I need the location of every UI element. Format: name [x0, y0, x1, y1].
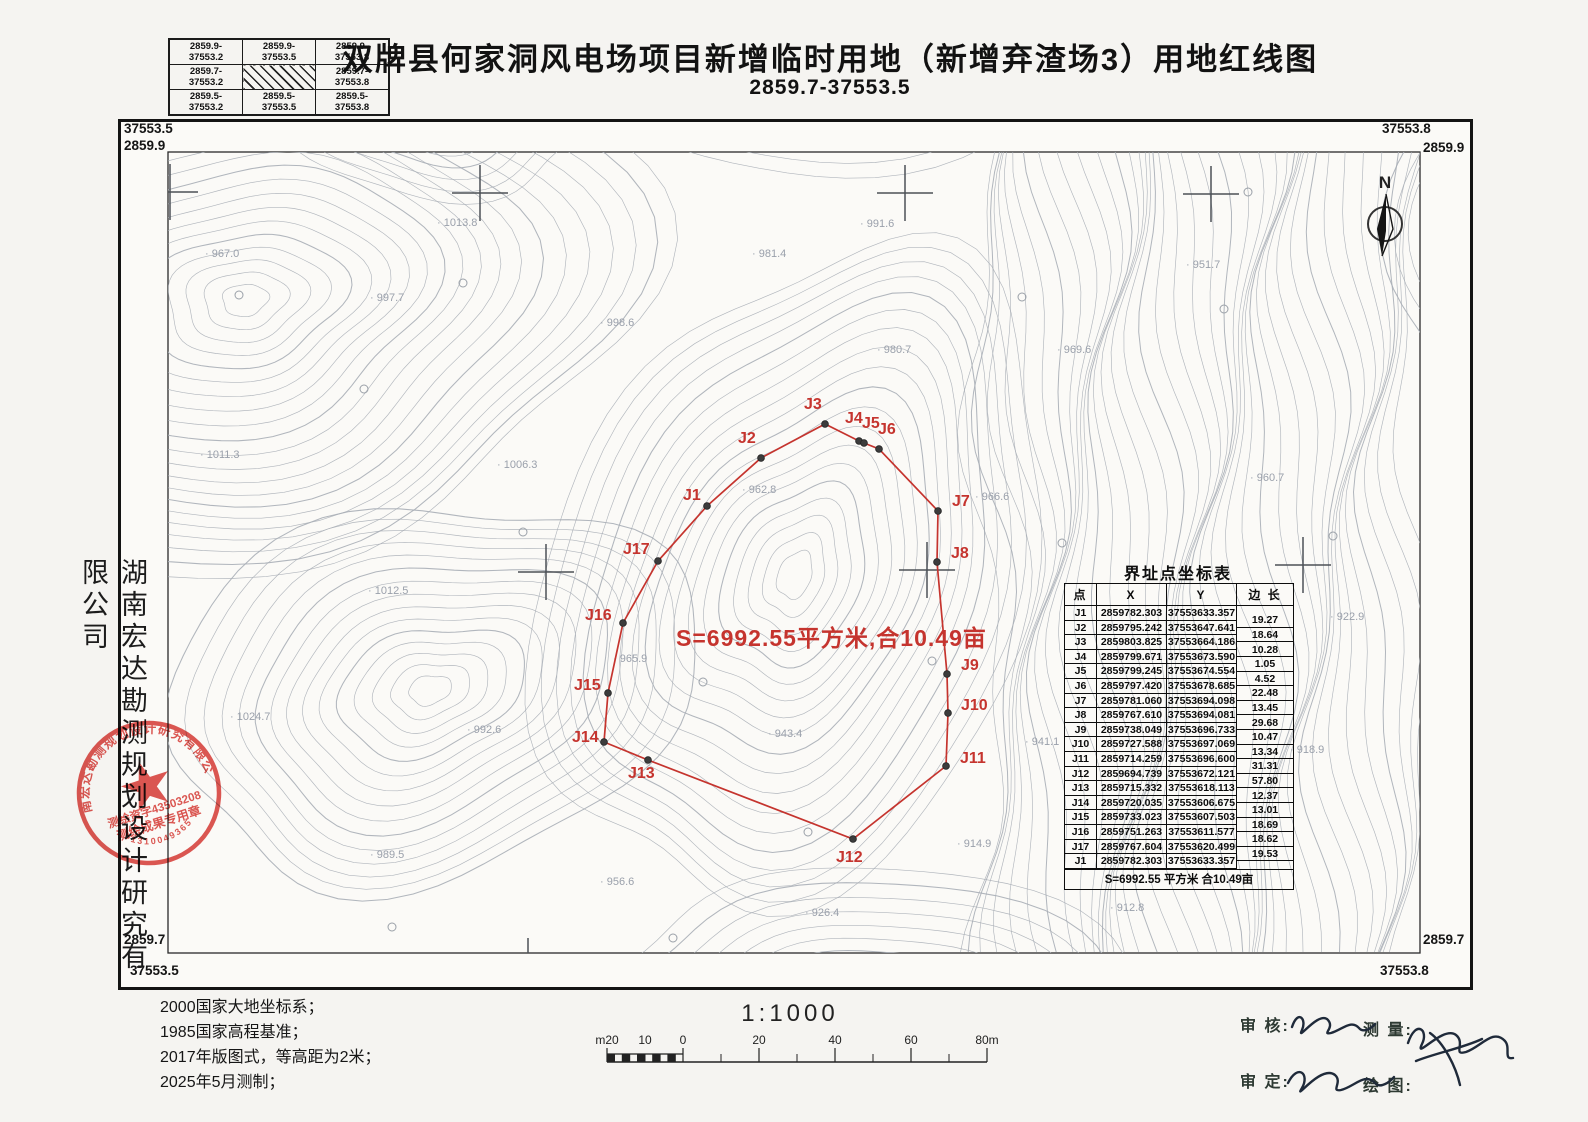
spot-elevation: · 966.6	[975, 491, 1009, 503]
coord-table-cell: 2859799.245	[1097, 664, 1167, 679]
coord-table-cell: 37553647.641	[1167, 621, 1237, 636]
coord-table-cell: 37553620.499	[1167, 840, 1237, 855]
segment-length-cell: 12.37	[1237, 789, 1293, 804]
coord-table-cell: 37553694.098	[1167, 694, 1237, 709]
scale-tick-label: 10	[638, 1033, 652, 1047]
coord-table-cell: 37553696.733	[1167, 723, 1237, 738]
coord-table-header: Y	[1167, 584, 1237, 606]
boundary-point-J8	[934, 559, 941, 566]
boundary-point-J12	[850, 836, 857, 843]
signature-approver	[1288, 1072, 1394, 1091]
coord-table-cell: J6	[1065, 679, 1097, 694]
signature-reviewer	[1292, 1017, 1375, 1033]
scanned-map-page: 2859.9-37553.22859.9-37553.52859.9-37553…	[0, 0, 1588, 1122]
segment-length-cell: 10.47	[1237, 730, 1293, 745]
scale-bar: m2010020406080m	[590, 1030, 1010, 1078]
grid-cross	[452, 165, 508, 221]
boundary-coordinates-table: 点 号XY边 长J12859782.30337553633.357J228597…	[1064, 583, 1294, 890]
segment-length-cell: 13.01	[1237, 803, 1293, 818]
boundary-point-label-J6: J6	[878, 421, 896, 438]
coord-table-cell: 2859767.604	[1097, 840, 1167, 855]
coord-table-cell: J13	[1065, 781, 1097, 796]
boundary-point-label-J2: J2	[738, 430, 756, 447]
coord-table-cell: 2859720.035	[1097, 796, 1167, 811]
spot-elevation: · 918.9	[1290, 744, 1324, 756]
spot-circle	[1018, 293, 1026, 301]
spot-circle	[388, 923, 396, 931]
segment-length-cell: 18.69	[1237, 818, 1293, 833]
segment-length-cell: 13.34	[1237, 745, 1293, 760]
red-seal-stamp: 湖南宏达勘测规划设计研究有限公司测绘资字43503208测绘成果专用章13100…	[64, 708, 234, 878]
boundary-point-J7	[935, 508, 942, 515]
segment-length-cell: 4.52	[1237, 672, 1293, 687]
spot-circle	[804, 828, 812, 836]
boundary-point-label-J10: J10	[961, 697, 988, 714]
spot-elevation: · 981.4	[752, 248, 786, 260]
coord-table-cell: 37553694.081	[1167, 708, 1237, 723]
coord-table-cell: 2859694.739	[1097, 767, 1167, 782]
scale-tick-label: 40	[828, 1033, 842, 1047]
scale-tick-label: 60	[904, 1033, 918, 1047]
boundary-point-J1	[704, 503, 711, 510]
boundary-point-J17	[655, 558, 662, 565]
boundary-point-label-J14: J14	[572, 729, 599, 746]
coord-table-cell: 37553607.503	[1167, 810, 1237, 825]
coord-table-cell: J1	[1065, 606, 1097, 621]
coord-table-cell: 37553633.357	[1167, 854, 1237, 869]
spot-elevation: · 951.7	[1186, 259, 1220, 271]
scale-tick-label: 0	[680, 1033, 687, 1047]
coord-table-cell: 37553697.069	[1167, 737, 1237, 752]
scale-tick-label: 20	[752, 1033, 766, 1047]
note-line: 2017年版图式，等高距为2米；	[160, 1045, 381, 1070]
coord-table-cell: J11	[1065, 752, 1097, 767]
coord-table-header: 点 号	[1065, 584, 1097, 606]
coord-table-cell: 37553696.600	[1167, 752, 1237, 767]
signature-surveyor	[1408, 1029, 1513, 1085]
coord-table-cell: J8	[1065, 708, 1097, 723]
boundary-point-J15	[605, 690, 612, 697]
coord-table-cell: 2859782.303	[1097, 854, 1167, 869]
boundary-point-label-J11: J11	[960, 750, 986, 767]
coord-table-cell: 2859781.060	[1097, 694, 1167, 709]
spot-elevation: · 992.6	[467, 724, 501, 736]
spot-elevation: · 997.7	[370, 292, 404, 304]
boundary-point-label-J1: J1	[683, 487, 701, 504]
segment-length-cell: 18.62	[1237, 832, 1293, 847]
coord-table-cell: J10	[1065, 737, 1097, 752]
coord-table-cell: 2859799.671	[1097, 650, 1167, 665]
spot-elevation: · 967.0	[205, 248, 239, 260]
spot-elevation: · 956.6	[600, 876, 634, 888]
coord-table-cell: 2859795.242	[1097, 621, 1167, 636]
coord-table-cell: 2859803.825	[1097, 635, 1167, 650]
coord-table-cell: 37553678.685	[1167, 679, 1237, 694]
coord-table-cell: 2859767.610	[1097, 708, 1167, 723]
spot-elevation: · 1012.5	[368, 585, 408, 597]
north-arrow-icon: N	[1368, 173, 1402, 256]
spot-circle	[1329, 532, 1337, 540]
spot-elevation: · 1013.8	[437, 217, 477, 229]
segment-length-cell: 57.80	[1237, 774, 1293, 789]
coord-table-header: 边 长	[1237, 584, 1293, 606]
coord-table-cell: J9	[1065, 723, 1097, 738]
spot-circle	[1058, 539, 1066, 547]
coord-table-title: 界址点坐标表	[1064, 560, 1292, 584]
spot-elevation: · 941.1	[1025, 736, 1059, 748]
coord-table-cell: J4	[1065, 650, 1097, 665]
boundary-point-J6	[876, 446, 883, 453]
boundary-point-label-J9: J9	[961, 657, 979, 674]
coord-table-cell: 2859782.303	[1097, 606, 1167, 621]
note-line: 1985国家高程基准；	[160, 1020, 381, 1045]
segment-length-cell: 1.05	[1237, 657, 1293, 672]
boundary-point-label-J4: J4	[845, 410, 863, 427]
coord-table-cell: 37553618.113	[1167, 781, 1237, 796]
north-label: N	[1379, 173, 1391, 192]
grid-cross	[518, 544, 574, 600]
boundary-point-label-J13: J13	[628, 765, 655, 782]
topographic-map: · 967.0· 1013.8· 997.7· 998.6· 981.4· 99…	[0, 0, 1588, 1122]
grid-cross	[1183, 166, 1239, 222]
spot-elevation: · 1024.7	[230, 711, 270, 723]
coord-table-cell: 37553672.121	[1167, 767, 1237, 782]
coord-table-cell: 2859727.588	[1097, 737, 1167, 752]
spot-elevation: · 989.5	[370, 849, 404, 861]
coord-table-cell: 2859714.259	[1097, 752, 1167, 767]
coord-table-cell: 37553674.554	[1167, 664, 1237, 679]
note-line: 2025年5月测制；	[160, 1070, 381, 1095]
boundary-point-J14	[601, 739, 608, 746]
coord-table-cell: J16	[1065, 825, 1097, 840]
boundary-point-J16	[620, 620, 627, 627]
coord-table-cell: J14	[1065, 796, 1097, 811]
boundary-point-label-J16: J16	[585, 607, 612, 624]
spot-elevation: · 1006.3	[497, 459, 537, 471]
grid-cross	[899, 542, 955, 598]
coord-table-cell: 2859715.332	[1097, 781, 1167, 796]
contour-lines	[0, 0, 1588, 1122]
handwritten-signatures	[1270, 995, 1570, 1115]
coord-table-cell: 2859797.420	[1097, 679, 1167, 694]
coord-table-cell: J15	[1065, 810, 1097, 825]
spot-circle	[360, 385, 368, 393]
spot-elevation: · 922.9	[1330, 611, 1364, 623]
boundary-point-J3	[822, 421, 829, 428]
spot-elevation: · 912.8	[1110, 902, 1144, 914]
boundary-point-J11	[943, 763, 950, 770]
coord-table-cell: 2859751.263	[1097, 825, 1167, 840]
spot-circle	[235, 291, 243, 299]
scale-tick-label: m20	[595, 1033, 619, 1047]
spot-elevation: · 1011.3	[200, 449, 240, 461]
coord-table-cell: 37553633.357	[1167, 606, 1237, 621]
spot-elevation: · 960.7	[1250, 472, 1284, 484]
spot-elevation: · 969.6	[1057, 344, 1091, 356]
coord-table-cell: 2859738.049	[1097, 723, 1167, 738]
boundary-point-label-J12: J12	[836, 849, 863, 866]
segment-length-cell: 10.28	[1237, 643, 1293, 658]
coord-table-cell: 2859733.023	[1097, 810, 1167, 825]
boundary-point-J2	[758, 455, 765, 462]
coord-table-header: X	[1097, 584, 1167, 606]
boundary-point-J13	[645, 757, 652, 764]
coord-table-cell: 37553611.577	[1167, 825, 1237, 840]
segment-length-cell: 19.27	[1237, 613, 1293, 628]
segment-length-cell: 19.53	[1237, 847, 1293, 862]
grid-cross	[877, 165, 933, 221]
boundary-point-label-J15: J15	[574, 677, 601, 694]
coord-table-cell: J2	[1065, 621, 1097, 636]
coord-table-cell: J12	[1065, 767, 1097, 782]
boundary-point-J5	[861, 440, 868, 447]
spot-circle	[928, 657, 936, 665]
spot-elevation: · 980.7	[877, 344, 911, 356]
coord-table-cell: J1	[1065, 854, 1097, 869]
coord-table-cell: J7	[1065, 694, 1097, 709]
spot-elevation: · 965.9	[613, 653, 647, 665]
spot-elevation: · 943.4	[768, 728, 802, 740]
boundary-point-label-J7: J7	[952, 493, 970, 510]
segment-length-cell: 22.48	[1237, 686, 1293, 701]
coord-table-cell: J17	[1065, 840, 1097, 855]
coord-table-cell: J3	[1065, 635, 1097, 650]
scale-ratio: 1:1000	[590, 1000, 990, 1028]
segment-length-cell: 18.64	[1237, 628, 1293, 643]
boundary-point-label-J3: J3	[804, 396, 822, 413]
scale-tick-label: 80m	[975, 1033, 998, 1047]
map-notes: 2000国家大地坐标系；1985国家高程基准；2017年版图式，等高距为2米；2…	[160, 995, 381, 1095]
segment-length-cell: 29.68	[1237, 716, 1293, 731]
coord-table-cell: J5	[1065, 664, 1097, 679]
coord-table-footer: S=6992.55 平方米 合10.49亩	[1065, 869, 1293, 889]
spot-elevation: · 998.6	[600, 317, 634, 329]
boundary-point-J10	[945, 710, 952, 717]
coord-table-cell: 37553606.675	[1167, 796, 1237, 811]
spot-elevation: · 914.9	[957, 838, 991, 850]
spot-elevation: · 962.8	[742, 484, 776, 496]
note-line: 2000国家大地坐标系；	[160, 995, 381, 1020]
segment-length-cell: 13.45	[1237, 701, 1293, 716]
spot-elevation: · 991.6	[860, 218, 894, 230]
spot-circle	[669, 934, 677, 942]
boundary-point-label-J8: J8	[951, 545, 969, 562]
coord-table-cell: 37553664.186	[1167, 635, 1237, 650]
segment-length-cell: 31.31	[1237, 759, 1293, 774]
area-label: S=6992.55平方米,合10.49亩	[676, 625, 987, 651]
boundary-point-label-J17: J17	[623, 541, 650, 558]
boundary-point-J9	[944, 671, 951, 678]
coord-table-cell: 37553673.590	[1167, 650, 1237, 665]
spot-elevation: · 926.4	[805, 907, 839, 919]
